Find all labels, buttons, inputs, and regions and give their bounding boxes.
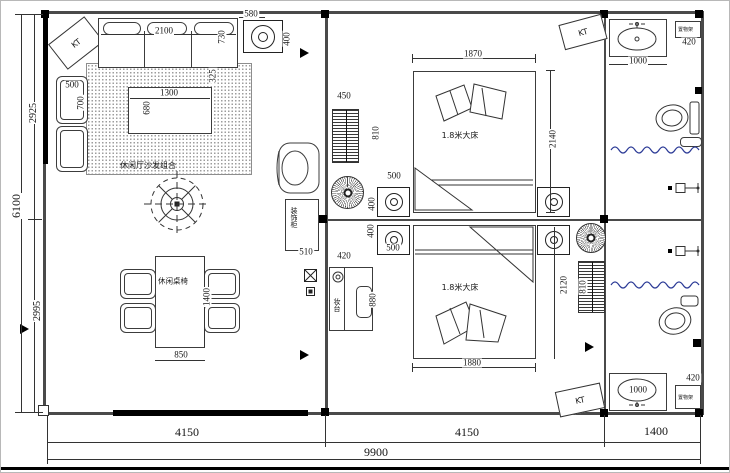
shelf-top: 置物架 [675, 21, 701, 38]
dining-chair [204, 303, 240, 333]
nightstand [377, 187, 410, 217]
dining-chair [120, 303, 156, 333]
dim-label: 510 [298, 248, 314, 257]
chair-cushion [124, 273, 152, 295]
dim-label: 420 [336, 252, 352, 261]
bed-top [413, 71, 536, 213]
dim-line-height-segs [34, 15, 35, 413]
bed-top-label: 1.8米大床 [441, 132, 480, 140]
column [321, 10, 329, 18]
dim-label: 400 [367, 223, 376, 239]
armchair-cushion [60, 130, 84, 168]
ac-unit-box: KT [558, 14, 607, 51]
ac-unit-label: KT [69, 37, 82, 50]
switch-icon [304, 269, 317, 282]
dim-line [155, 360, 205, 361]
dresser: 妆台 [329, 267, 373, 331]
floor-drain [695, 87, 702, 94]
column [695, 409, 703, 417]
ceiling-lamp-icon [142, 169, 212, 239]
dim-label: 730 [218, 29, 227, 45]
dim-tick [15, 412, 43, 413]
dim-tick [546, 212, 555, 213]
dresser-label: 妆台 [333, 298, 340, 312]
chair-cushion [208, 307, 236, 329]
washbasin-counter-bottom: 1000 [609, 373, 667, 411]
dim-label: 1880 [462, 359, 482, 368]
armchair [56, 126, 88, 172]
dim-tick [412, 54, 413, 63]
chair-cushion [124, 307, 152, 329]
sofa-group-label: 休闲厅沙发组合 [119, 162, 177, 170]
dining-chair [120, 269, 156, 299]
dim-label: 325 [209, 68, 218, 84]
dim-label: 680 [143, 100, 152, 116]
dim-label: 2925 [29, 102, 39, 124]
fan-hub [343, 188, 352, 197]
floor-drain [693, 339, 701, 347]
hood-inner-circle [258, 32, 268, 42]
dresser-divider [344, 268, 345, 330]
radiator-spine [346, 110, 347, 162]
water-line [609, 279, 703, 289]
dim-label: 2120 [560, 275, 569, 295]
shelf-bottom-label: 置物架 [678, 394, 693, 401]
dim-label: 810 [579, 279, 588, 295]
dim-label: 1000 [628, 57, 648, 66]
ac-unit-box: KT [48, 16, 104, 70]
dim-label: 700 [77, 95, 86, 111]
shelf-top-label: 置物架 [678, 26, 693, 33]
dim-label: 2140 [549, 129, 558, 149]
basin-bottom-dim: 1000 [628, 386, 648, 395]
dim-label: 1870 [463, 50, 483, 59]
dim-tick [28, 219, 42, 220]
wall-divider-living [325, 11, 328, 415]
dim-label: 580 [243, 10, 259, 19]
dim-label: 6100 [10, 193, 22, 219]
column [600, 215, 608, 223]
dim-label: 450 [336, 92, 352, 101]
dim-tick [546, 70, 555, 71]
dim-tick [535, 54, 536, 63]
sofa-seat-divider [191, 31, 192, 67]
door-marker [300, 350, 309, 360]
fan-icon [331, 176, 364, 209]
dresser-mirror-icon [332, 271, 344, 283]
fan-hub [587, 234, 596, 243]
dim-label: 500 [386, 172, 402, 181]
dim-label: 880 [369, 292, 378, 308]
lounge-chair [273, 141, 321, 196]
socket-icon [306, 287, 315, 296]
bed-top-graphics [414, 72, 534, 211]
dim-label: 1400 [203, 287, 212, 307]
dim-label: 2100 [154, 27, 174, 36]
extension-line [325, 415, 326, 445]
dining-set-label: 休闲桌椅 [157, 277, 189, 285]
ac-unit-label: KT [577, 26, 589, 37]
dim-line [130, 98, 210, 99]
extension-line [700, 415, 701, 461]
dim-tick [15, 14, 43, 15]
dim-label: 1300 [159, 89, 179, 98]
wall-fill-left [43, 14, 48, 164]
dim-label: 810 [372, 125, 381, 141]
deco-cabinet: 装饰柜 [285, 199, 319, 251]
door-marker [585, 342, 594, 352]
fan-icon [576, 223, 606, 253]
dim-label: 500 [64, 81, 80, 90]
shelf-bottom: 置物架 [675, 385, 701, 409]
washbasin-counter-top [609, 19, 667, 57]
dim-label: 500 [385, 244, 401, 253]
page-border-rule [1, 467, 730, 470]
dim-label: 420 [685, 374, 701, 383]
dim-tick [412, 363, 413, 372]
sofa-seat-divider [144, 31, 145, 67]
dim-label: 400 [368, 196, 377, 212]
wall-divider-bath [604, 11, 606, 415]
extension-line [604, 415, 605, 445]
chair-cushion [208, 273, 236, 295]
radiator-spine [592, 262, 593, 312]
radiator [332, 109, 359, 163]
shower-head-icon [667, 181, 703, 195]
toilet [653, 295, 701, 337]
dim-tick [535, 363, 536, 372]
shower-head-icon [667, 244, 703, 258]
bed-bottom [413, 225, 536, 359]
ac-unit-label: KT [574, 395, 585, 406]
column [695, 10, 703, 18]
washbasin-top-graphics [610, 20, 665, 55]
hood-symbol [243, 20, 283, 53]
dim-line-total [48, 459, 701, 460]
dim-label: 850 [173, 351, 189, 360]
extension-line [47, 415, 48, 461]
dim-label: 9900 [363, 446, 389, 458]
dim-label: 4150 [174, 426, 200, 438]
column [319, 215, 327, 223]
deco-cabinet-label: 装饰柜 [290, 207, 297, 228]
dim-label: 400 [283, 31, 292, 47]
wall-right [701, 11, 704, 415]
floor-plan-sheet: KT 装饰柜 [0, 0, 730, 473]
wall-bedroom-split [325, 219, 704, 221]
bed-bottom-label: 1.8米大床 [441, 284, 480, 292]
toilet [653, 99, 701, 139]
dining-table [155, 256, 205, 348]
dim-label: 4150 [454, 426, 480, 438]
water-line [609, 144, 703, 154]
dim-label: 2995 [33, 300, 43, 322]
dim-label: 420 [681, 38, 697, 47]
dim-line [554, 227, 555, 359]
nightstand-lamp-center [390, 198, 398, 206]
door-marker [300, 48, 309, 58]
dim-label: 1400 [643, 425, 669, 437]
wall-fill-bottom [113, 410, 308, 416]
